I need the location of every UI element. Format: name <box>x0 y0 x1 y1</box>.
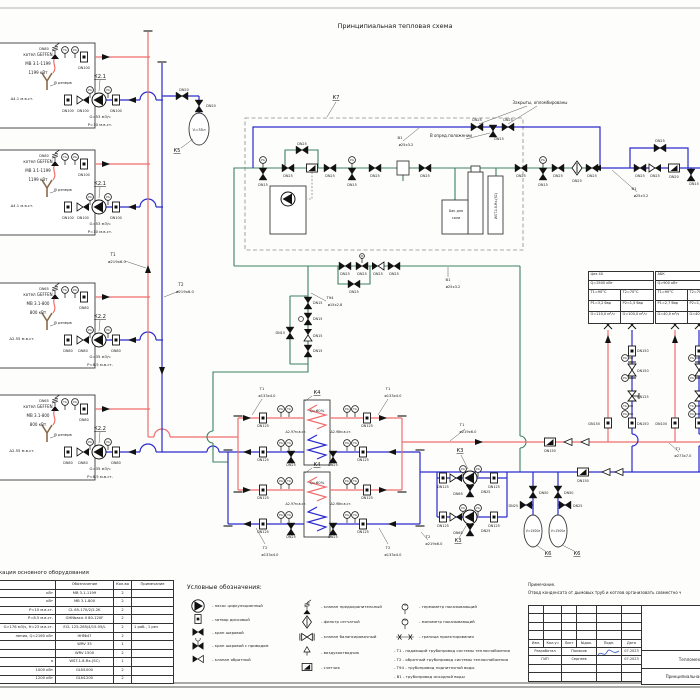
schematic-label: DN25 <box>389 272 398 276</box>
consumer-p2: Р2=1,5 бар <box>621 301 653 312</box>
title-block-right: Тепломеханические Принципиальная теплова… <box>641 605 700 685</box>
schematic-label: В резерв <box>54 432 72 437</box>
spec-cell: 2 <box>114 649 132 658</box>
schematic-label: В резерв <box>54 187 72 192</box>
legend-pipe-designation: - Т1 - подающий трубопровод системы тепл… <box>394 647 510 656</box>
titleblock-cell <box>544 631 562 639</box>
flow-arrow-icon <box>475 439 483 445</box>
schematic-label: TG <box>689 404 694 408</box>
consumer-t1: Т1=90°С <box>656 290 688 301</box>
spec-cell <box>132 641 174 650</box>
spec-row: кВтМВ 3.1-11992 <box>0 589 174 598</box>
makeup-water-line-t94 <box>207 254 526 472</box>
check-valve-icon <box>450 474 462 482</box>
consumer-g2: G=100,0 м³/ч <box>621 312 653 322</box>
schematic-label: котел GEFFEN <box>23 292 52 297</box>
titleblock-cell <box>529 614 544 622</box>
bound-icon <box>394 629 416 645</box>
schematic-label: DN25 <box>509 504 518 508</box>
ball-valve-icon <box>348 168 356 180</box>
spec-cell: WRV 1500 <box>56 649 114 658</box>
schematic-label: ø25х3.2 <box>446 285 461 289</box>
schematic-label: DN25 <box>297 142 306 146</box>
strainer-icon <box>296 614 318 630</box>
schematic-label: DN100 <box>110 216 122 220</box>
spec-cell <box>0 641 56 650</box>
ball-valve-icon <box>466 485 474 497</box>
ball-valve-icon <box>654 144 666 152</box>
schematic-label: DN25 <box>655 139 664 143</box>
titleblock-cell <box>597 614 622 622</box>
schematic-label: TG <box>286 441 291 445</box>
ballact-icon <box>193 638 204 650</box>
schematic-label: DN25 <box>481 529 490 533</box>
spec-row: P=8.5 м.в.ст.GHNbasic II 80-120F2 <box>0 615 174 624</box>
meter-icon <box>302 664 312 671</box>
schematic-label: МВ 3.1-800 <box>27 301 50 306</box>
schematic-label: DN80 <box>111 349 120 353</box>
schematic-label: PG <box>476 506 480 510</box>
schematic-label: PG <box>261 158 265 162</box>
schematic-label: P=8.5 м.в.ст. <box>87 474 113 479</box>
titleblock-cell <box>577 631 597 639</box>
schematic-label: TG <box>62 155 67 159</box>
schematic-label: В резерв <box>54 80 72 85</box>
schematic-label: DN150 <box>637 369 649 373</box>
spec-cell <box>132 658 174 667</box>
spec-cell <box>132 666 174 675</box>
pump-icon <box>281 192 295 206</box>
schematic-label: DN150 <box>588 422 600 426</box>
schematic-label: G=35 м3/ч <box>90 466 111 471</box>
schematic-label: PG <box>461 467 465 471</box>
schematic-label: PG <box>106 440 110 444</box>
schematic-label: Δ4.1 м.в.ст. <box>11 96 34 101</box>
titleblock-cell: 07.2023 <box>622 647 642 655</box>
schematic-label: DN25 <box>516 174 525 178</box>
schematic-label: PG <box>623 412 627 416</box>
schematic-label: Т1 <box>259 386 265 391</box>
return-pipe <box>162 96 199 113</box>
schematic-label: 1199 кВт <box>29 177 49 182</box>
spec-cell: 2 <box>114 606 132 615</box>
check-valve-icon <box>649 164 661 172</box>
schematic-label: PG <box>345 479 349 483</box>
gauge-icon: PG <box>394 614 416 630</box>
titleblock-cell <box>562 673 597 681</box>
schematic-label: DN50 <box>539 491 548 495</box>
titleblock-cell: 07.2023 <box>622 656 642 664</box>
legend-item: - клапан балансировочный <box>296 629 382 644</box>
spec-cell: ления, Q=2160 кВт <box>0 632 56 641</box>
legend-item-label: - клапан предохранительный <box>321 604 382 609</box>
spec-row: P=10 м.в.ст.CL 65-170/2/2.2K2 <box>0 606 174 615</box>
legend-item-label: - воздухоотводчик <box>321 650 359 655</box>
airvent-icon <box>304 647 310 656</box>
solenoid-valve-icon <box>356 254 368 270</box>
schematic-label: DN15 <box>538 183 547 187</box>
gate-icon <box>195 615 201 624</box>
schematic-label: TG <box>62 288 67 292</box>
schematic-label: 800 кВт <box>30 422 47 427</box>
airvent-icon <box>296 644 318 660</box>
ball-valve-icon <box>286 327 294 339</box>
schematic-label: ø133х4.0 <box>259 394 277 398</box>
schematic-label: DN25 <box>340 272 349 276</box>
drawing-title: Принципиальная тепловая схема <box>250 22 540 30</box>
spec-cell: 2 <box>114 675 132 684</box>
schematic-label: PG <box>690 356 694 360</box>
schematic-label: К3 <box>455 538 462 544</box>
schematic-label: WST-1.8-Rx-(SC) <box>494 193 498 219</box>
note-text: Отвод конденсата от дымовых труб и котло… <box>528 590 700 595</box>
schematic-label: DN125 <box>257 424 269 428</box>
schematic-label: DN65 <box>453 492 462 496</box>
legend-item-label: - счетчик <box>321 665 340 670</box>
ball-valve-icon <box>687 169 695 181</box>
balance-icon <box>300 633 314 640</box>
consumer-name: АБК <box>656 272 700 281</box>
ball-valve-icon <box>502 123 514 131</box>
spec-cell <box>132 649 174 658</box>
consumer-g1: G=110,0 м³/ч <box>589 312 621 322</box>
schematic-label: PG <box>690 376 694 380</box>
disc-valve-icon <box>491 473 498 483</box>
legend-pipe-designation: - Т94 - трубопровод подпиточной воды <box>394 664 510 673</box>
schematic-label: DN150 <box>544 449 556 453</box>
schematic-label: DN25 <box>325 174 334 178</box>
consumer-t1: Т1=90°С <box>589 290 621 301</box>
check-valve-icon <box>372 262 384 270</box>
legend-item-label: - кран шаровой <box>212 630 244 635</box>
titleblock-cell <box>622 673 642 681</box>
schematic-label: PG <box>279 441 283 445</box>
consumer-p1: Р1=3,2 бар <box>589 301 621 312</box>
titleblock-cell <box>597 664 622 672</box>
spec-cell <box>132 632 174 641</box>
ball-valve-icon <box>515 164 527 172</box>
schematic-label: PG <box>279 479 283 483</box>
titleblock-cell: Кол.уч <box>544 639 562 647</box>
spec-cell: МВ 3.1-1199 <box>56 589 114 598</box>
schematic-label: DN80 <box>39 154 48 158</box>
signature <box>597 649 621 658</box>
titleblock-cell <box>529 664 562 672</box>
schematic-label: DN25 <box>373 272 382 276</box>
title-block-approvals <box>642 606 700 651</box>
schematic-label: DN80 <box>111 461 120 465</box>
spec-cell: 1200 кВт <box>0 675 56 684</box>
spec-cell <box>132 606 174 615</box>
schematic-label: ø133х4.0 <box>385 553 403 557</box>
schematic-label: В опред.положении <box>430 133 472 138</box>
flow-arrow-icon <box>564 439 572 446</box>
flow-arrow-icon <box>145 265 151 273</box>
schematic-label: TG <box>352 407 357 411</box>
schematic-label: DN25 <box>481 490 490 494</box>
spec-cell: P=8.5 м.в.ст. <box>0 615 56 624</box>
schematic-label: DN80 <box>39 47 48 51</box>
schematic-label: Т2 <box>178 282 184 287</box>
equipment-outline <box>471 166 480 172</box>
schematic-label: PG <box>106 328 110 332</box>
titleblock-cell <box>622 631 642 639</box>
spec-header-cell: Примечание <box>132 581 174 590</box>
ball-valve-icon <box>324 164 336 172</box>
titleblock-cell: Подп. <box>597 639 622 647</box>
schematic-label: DN125 <box>361 424 373 428</box>
consumer-block-ceh40: Цех 40 Q=2500 кВт Т1=90°С Т2=70°С Р1=3,2… <box>588 271 654 324</box>
consumer-g1: G=40,0 м³/ч <box>656 312 688 322</box>
spec-row: кВтМВ 3.1-8002 <box>0 598 174 607</box>
schematic-label: DN25 <box>357 272 366 276</box>
schematic-label: ø219х6.0 <box>426 542 444 546</box>
riser-ceh40 <box>604 321 639 472</box>
legend-gauge-glyph: TG <box>403 604 406 607</box>
schematic-label: TG <box>286 513 291 517</box>
schematic-label: Т1 <box>675 446 681 451</box>
spec-cell: я <box>0 658 56 667</box>
titleblock-cell <box>544 614 562 622</box>
leader-line <box>379 528 388 544</box>
schematic-label: DN80 <box>78 461 87 465</box>
schematic-label: DN25 <box>573 504 582 508</box>
schematic-label: ø25х3.2 <box>399 143 414 147</box>
schematic-label: В резерв <box>54 320 72 325</box>
schematic-label: DN50 <box>564 491 573 495</box>
disc-valve-icon <box>491 512 498 522</box>
schematic-label: DN125 <box>488 485 500 489</box>
schematic-label: DN80 <box>78 349 87 353</box>
meter-icon <box>669 164 680 172</box>
schematic-label: К6 <box>545 551 552 557</box>
schematic-label: Δ2.97м.в.ст. <box>286 502 307 506</box>
schematic-label: DN25 <box>286 463 295 467</box>
note-block: Примечание. Отвод конденсата от дымовых … <box>528 582 700 595</box>
consumer-p1: Р1=2,7 бар <box>656 301 688 312</box>
schematic-label: PG <box>88 440 92 444</box>
spec-cell: GLN1200 <box>56 675 114 684</box>
schematic-label: PG <box>73 288 77 292</box>
flow-arrow-icon <box>159 367 165 375</box>
schematic-label: В1 <box>445 277 451 282</box>
spec-cell: кВт <box>0 589 56 598</box>
titleblock-cell <box>577 614 597 622</box>
schematic-label: P=10 м.в.ст. <box>88 229 113 234</box>
legend-heading: Условные обозначения: <box>187 584 262 591</box>
ball-valve-icon <box>304 297 312 309</box>
expansion-tanks-k6 <box>520 472 571 547</box>
schematic-label: DN15 <box>313 301 322 305</box>
leader-line <box>378 399 388 415</box>
schematic-label: DN125 <box>437 524 449 528</box>
schematic-label: PG <box>73 400 77 404</box>
ball-icon <box>193 629 204 636</box>
schematic-label: Закрыты, опломбированы <box>513 100 568 105</box>
schematic-label: DN125 <box>488 524 500 528</box>
schematic-label: PG <box>106 88 110 92</box>
ball-valve-icon <box>176 92 188 100</box>
schematic-label: Δ4.1 м.в.ст. <box>11 203 34 208</box>
spec-cell: 2 <box>114 623 132 632</box>
schematic-label: P=10 м.в.ст. <box>88 122 113 127</box>
titleblock-cell: Разработал <box>529 647 562 655</box>
schematic-label: соли <box>452 216 460 220</box>
network-trunks <box>402 438 700 476</box>
legend-item-label: - фильтр сетчатый <box>321 619 360 624</box>
schematic-label: Т1 <box>385 386 391 391</box>
legend-item-label: - манометр показывающий <box>419 619 475 624</box>
schematic-label: К6 <box>574 551 581 557</box>
consumer-load: Q=2500 кВт <box>589 281 653 290</box>
titleblock-cell <box>562 614 577 622</box>
schematic-label: DN25 <box>572 179 581 183</box>
schematic-label: МВ 3.1-1199 <box>25 168 51 173</box>
titleblock-cell: Сергеев <box>562 656 597 664</box>
leader-line <box>562 545 574 551</box>
titleblock-cell <box>597 606 622 614</box>
legend-item-label: - граница проектирования <box>419 634 474 639</box>
titleblock-cell <box>622 614 642 622</box>
legend-item-label: - насос циркуляционный <box>212 603 263 608</box>
legend-item: - воздухоотводчик <box>296 645 382 660</box>
schematic-label: V=1500л <box>526 529 541 533</box>
schematic-label: V=35л <box>192 127 206 132</box>
ball-valve-icon <box>529 486 537 498</box>
schematic-label: TG <box>286 479 291 483</box>
schematic-label: TG <box>62 400 67 404</box>
titleblock-cell: №док. <box>577 639 597 647</box>
consumer-block-abk: АБК Q=900 кВт Т1=90°С Т2=70°С Р1=2,7 бар… <box>655 271 700 324</box>
spec-cell: 2 <box>114 598 132 607</box>
title-block-sheet-name: Принципиальная тепловая схема <box>642 669 700 683</box>
legend-item-label: - кран шаровой с приводом <box>212 643 268 648</box>
schematic-label: Бак для <box>449 209 463 213</box>
ball-valve-icon <box>471 123 483 131</box>
schematic-label: V=1500л <box>551 529 566 533</box>
spec-cell: 2 <box>114 666 132 675</box>
spec-row: 1200 кВтGLN12002 <box>0 675 174 684</box>
spec-cell: GLN1000 <box>56 666 114 675</box>
titleblock-cell <box>577 622 597 630</box>
schematic-label: В1 <box>397 135 403 140</box>
legend-item: - клапан предохранительный <box>296 599 382 614</box>
schematic-label: DN15 <box>347 183 356 187</box>
spec-cell <box>132 598 174 607</box>
schematic-label: DN25 <box>349 290 358 294</box>
consumer-name: Цех 40 <box>589 272 653 281</box>
ball-valve-icon <box>304 345 312 357</box>
schematic-label: PG <box>279 513 283 517</box>
schematic-label: котел GEFFEN <box>23 159 52 164</box>
schematic-label: DN80 <box>63 461 72 465</box>
balance-icon <box>296 629 318 645</box>
spec-cell: P=10 м.в.ст. <box>0 606 56 615</box>
gauge-icon: TG <box>394 599 416 615</box>
schematic-label: DN125 <box>357 458 369 462</box>
titleblock-cell: ГИП <box>529 656 562 664</box>
spec-cell: 2 <box>114 615 132 624</box>
schematic-label: DN80 <box>79 418 88 422</box>
ball-valve-icon <box>259 168 267 180</box>
signature-stroke <box>598 650 619 655</box>
schematic-label: Т2 <box>262 545 268 550</box>
schematic-label: К2.1 <box>94 74 106 80</box>
schematic-label: DN100 <box>77 109 89 113</box>
schematic-label: DN100 <box>78 66 90 70</box>
consumer-g2: G=40,0 м³/ч <box>688 312 700 322</box>
schematic-label: К2.2 <box>94 314 106 320</box>
spec-cell: 1 раб., 1 рез <box>132 623 174 632</box>
schematic-label: PG <box>106 195 110 199</box>
schematic-label: PG <box>88 88 92 92</box>
ball-valve-icon <box>195 100 203 112</box>
schematic-label: К3 <box>457 448 464 454</box>
schematic-label: ø133х4.0 <box>262 553 280 557</box>
schematic-label: Δ2.97м.в.ст. <box>286 430 307 434</box>
schematic-label: Δ2.55 м.в.ст. <box>9 448 34 453</box>
meter-icon <box>578 468 589 476</box>
titleblock-cell <box>562 622 577 630</box>
title-block: Изм.Кол.учЛист№док.Подп.ДатаРазработалПо… <box>528 605 642 682</box>
schematic-label: DN25 <box>328 535 337 539</box>
spec-cell <box>132 615 174 624</box>
schematic-label: ø219х6.0 <box>460 430 478 434</box>
equipment-outline <box>468 172 483 234</box>
legend-item: - клапан обратный <box>187 653 268 666</box>
schematic-label: PG <box>461 506 465 510</box>
schematic-label: DN25 <box>650 174 659 178</box>
schematic-label: DN15 <box>313 317 322 321</box>
spec-cell: GHNbasic II 80-120F <box>56 615 114 624</box>
ball-valve-icon <box>419 164 431 172</box>
ball-valve-icon <box>559 501 571 509</box>
ball-valve-icon <box>539 168 547 180</box>
spec-cell: 1 <box>114 658 132 667</box>
title-block-doc-name: Тепломеханические <box>642 651 700 669</box>
safety-icon <box>296 599 318 615</box>
legend-pipe-designations: - Т1 - подающий трубопровод системы тепл… <box>394 647 510 681</box>
schematic-label: G=53 м3/ч <box>90 114 111 119</box>
schematic-label: DN65 <box>453 531 462 535</box>
ball-valve-icon <box>552 164 564 172</box>
schematic-label: PG <box>690 412 694 416</box>
spec-cell: 1000 кВт <box>0 666 56 675</box>
schematic-label: DN150 <box>577 479 589 483</box>
schematic-label: PG <box>623 356 627 360</box>
schematic-label: ø273х7.0 <box>675 454 693 458</box>
schematic-label: ø219х6.0 <box>176 289 194 294</box>
pump-icon <box>463 510 477 524</box>
schematic-label: DN15 <box>313 334 322 338</box>
schematic-label: DN20 <box>179 88 188 92</box>
legend-column-1: - насос циркуляционный- затвор дисковый-… <box>187 599 268 666</box>
consumer-t2: Т2=70°С <box>688 290 700 301</box>
schematic-label: TG <box>286 407 291 411</box>
schematic-label: ø219х6.0 <box>108 259 126 264</box>
titleblock-cell <box>562 606 577 614</box>
ball-valve-icon <box>466 524 474 536</box>
schematic-label: PG <box>279 407 283 411</box>
schematic-label: котел GEFFEN <box>23 52 52 57</box>
schematic-label: Δ2.98м.в.ст. <box>331 502 352 506</box>
titleblock-cell: Изм. <box>529 639 544 647</box>
titleblock-cell <box>529 631 544 639</box>
schematic-label: Т2 <box>425 534 431 539</box>
spec-table-caption: Спецификация основного оборудования <box>0 570 89 576</box>
legend-column-3: TG- термометр показывающийPG- манометр п… <box>394 599 477 644</box>
flow-arrow-icon <box>602 469 610 476</box>
